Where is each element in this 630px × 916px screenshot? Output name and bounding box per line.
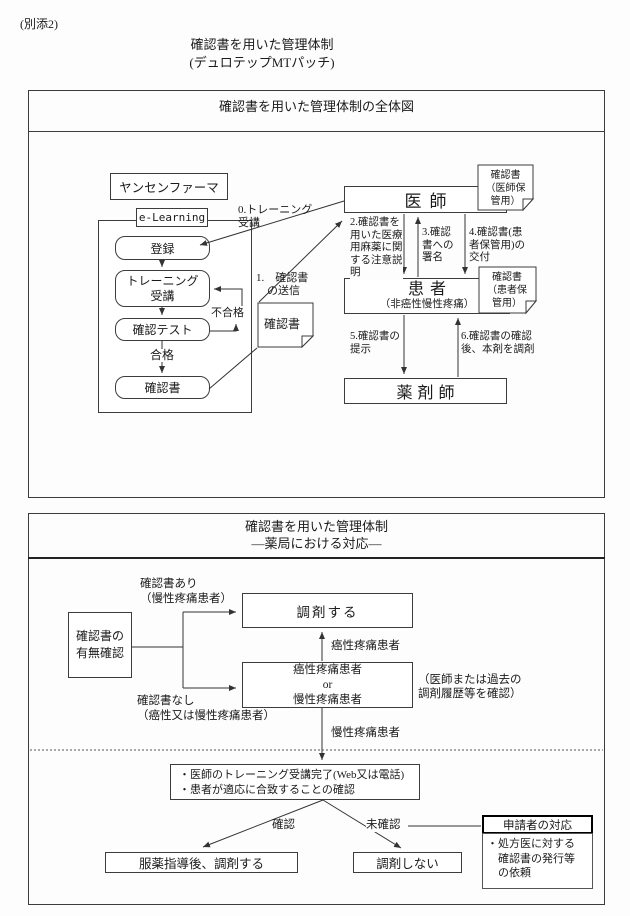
janssen-label: ヤンセンファーマ bbox=[119, 177, 219, 196]
no-dispense-label: 調剤しない bbox=[376, 853, 439, 872]
certificate-note-text: 確認書 bbox=[258, 318, 306, 331]
patient-type-or-label: 癌性疼痛患者 or 慢性疼痛患者 bbox=[293, 663, 362, 708]
training-label: トレーニング 受講 bbox=[126, 274, 198, 304]
applicant-response-body: ・処方医に対する 確認書の発行等 の依頼 bbox=[482, 833, 593, 889]
arrow-label-step3: 3.確認 書への 署名 bbox=[422, 227, 454, 265]
pharmacy-frame-title2: ―薬局における対応― bbox=[28, 537, 605, 550]
guidance-dispense-box: 服薬指導後、調剤する bbox=[105, 852, 298, 873]
applicant-response-title: 申請者の対応 bbox=[503, 817, 572, 833]
cert-check-label: 確認書の 有無確認 bbox=[76, 628, 124, 662]
applicant-response-header: 申請者の対応 bbox=[482, 815, 593, 834]
dispense-box: 調剤する bbox=[242, 593, 413, 628]
arrow-label-step4: 4.確認書(患 者保管用)の 交付 bbox=[469, 227, 525, 265]
cert-check-box: 確認書の 有無確認 bbox=[68, 612, 132, 678]
doc-title-line2: (デュロテップMTパッチ) bbox=[97, 56, 427, 69]
pharmacist-confirm-box: ・医師のトレーニング受講完了(Web又は電話) ・患者が適応に合致することの確認 bbox=[170, 764, 420, 800]
document-page: (別添2) 確認書を用いた管理体制 (デュロテップMTパッチ) 確認書を用いた管… bbox=[0, 0, 630, 916]
no-dispense-box: 調剤しない bbox=[353, 852, 462, 873]
pharmacist-box: 薬剤師 bbox=[344, 378, 507, 404]
dispensing-history-note: （医師または過去の 調剤履歴等を確認） bbox=[418, 673, 522, 701]
test-step-box: 確認テスト bbox=[115, 318, 210, 341]
overview-title-divider bbox=[28, 131, 605, 132]
arrow-label-step1: 1. 確認書 の送信 bbox=[256, 272, 308, 298]
chronic-pain-label: 慢性疼痛患者 bbox=[331, 727, 400, 740]
janssen-box: ヤンセンファーマ bbox=[110, 173, 228, 200]
guidance-dispense-label: 服薬指導後、調剤する bbox=[139, 853, 264, 872]
unconfirmed-label: 未確認 bbox=[366, 819, 401, 832]
confirmed-label: 確認 bbox=[272, 819, 295, 832]
pass-label: 合格 bbox=[142, 349, 182, 362]
doctor-label: 医師 bbox=[405, 187, 455, 212]
patient-note-text: 確認書 （患者保 管用） bbox=[478, 271, 536, 310]
elearning-box: e-Learning bbox=[136, 208, 208, 227]
training-step-box: トレーニング 受講 bbox=[115, 270, 210, 307]
pharmacist-label: 薬剤師 bbox=[396, 379, 459, 403]
applicant-response-text: ・処方医に対する 確認書の発行等 の依頼 bbox=[487, 837, 575, 881]
pharmacy-title-divider bbox=[28, 557, 605, 559]
doctor-note-text: 確認書 （医師保 管用） bbox=[477, 169, 534, 208]
cancer-pain-label: 癌性疼痛患者 bbox=[331, 640, 400, 653]
with-cert-label: 確認書あり （慢性疼痛患者） bbox=[140, 577, 232, 607]
test-label: 確認テスト bbox=[132, 321, 192, 338]
arrow-label-step5: 5.確認書の 提示 bbox=[350, 331, 400, 356]
patient-sublabel: （非癌性慢性疼痛） bbox=[380, 298, 475, 311]
certificate-step-box: 確認書 bbox=[115, 376, 210, 399]
without-cert-label: 確認書なし （癌性又は慢性疼痛患者） bbox=[137, 694, 275, 724]
patient-label: 患者 bbox=[402, 281, 452, 298]
arrow-label-step2: 2.確認書を 用いた医療 用麻薬に関 する注意説 明 bbox=[350, 217, 403, 280]
doc-title-line1: 確認書を用いた管理体制 bbox=[97, 38, 427, 51]
register-label: 登録 bbox=[150, 240, 174, 257]
attachment-label: (別添2) bbox=[20, 18, 58, 31]
pharmacist-confirm-label: ・医師のトレーニング受講完了(Web又は電話) ・患者が適応に合致することの確認 bbox=[179, 768, 404, 798]
register-step-box: 登録 bbox=[115, 236, 210, 260]
dispense-label: 調剤する bbox=[297, 601, 359, 621]
elearning-label: e-Learning bbox=[139, 211, 205, 224]
overview-frame-title: 確認書を用いた管理体制の全体図 bbox=[28, 100, 605, 113]
arrow-label-step0: 0.トレーニング 受講 bbox=[238, 204, 312, 230]
fail-label: 不合格 bbox=[211, 307, 244, 320]
certificate-label: 確認書 bbox=[144, 379, 180, 396]
arrow-label-step6: 6.確認書の確認 後、本剤を調剤 bbox=[461, 331, 535, 356]
pharmacy-frame-title1: 確認書を用いた管理体制 bbox=[28, 520, 605, 533]
